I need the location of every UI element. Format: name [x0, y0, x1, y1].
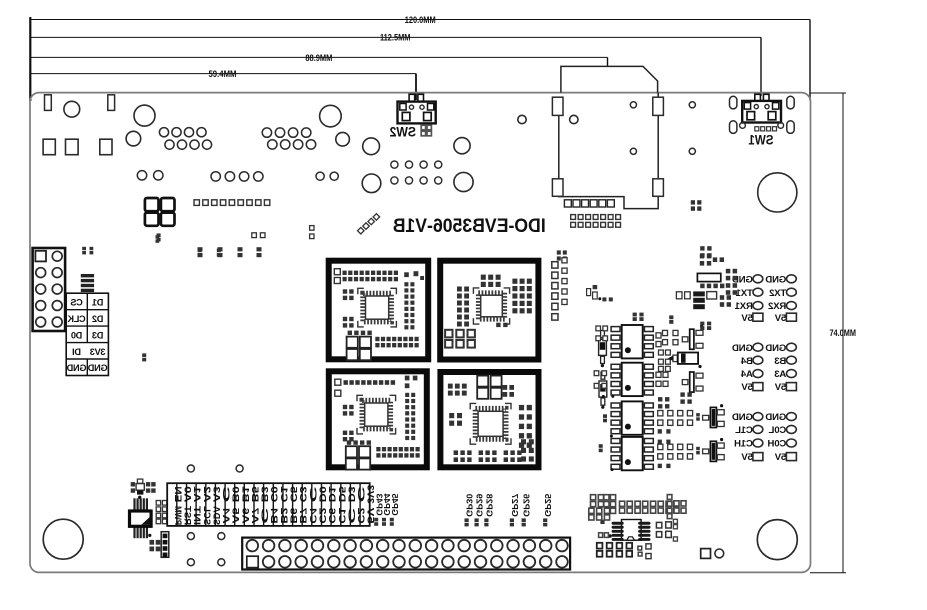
- svg-text:TX1: TX1: [735, 288, 753, 299]
- svg-text:GP27: GP27: [510, 493, 520, 516]
- svg-text:SCL: SCL: [201, 506, 212, 525]
- svg-text:C2: C2: [317, 508, 328, 524]
- svg-text:5V: 5V: [774, 452, 786, 463]
- svg-text:A3: A3: [210, 486, 221, 502]
- svg-text:EN: EN: [172, 486, 183, 502]
- svg-text:SW1: SW1: [748, 133, 773, 148]
- svg-text:B0: B0: [230, 486, 241, 502]
- svg-text:GP25: GP25: [543, 493, 553, 516]
- svg-text:D2: D2: [92, 314, 103, 324]
- svg-text:C0: C0: [268, 486, 279, 502]
- svg-text:C1: C1: [278, 485, 289, 502]
- svg-text:59.4MM: 59.4MM: [209, 69, 237, 80]
- svg-text:B5: B5: [249, 485, 260, 502]
- svg-text:D3: D3: [345, 486, 356, 502]
- svg-text:C1L: C1L: [735, 425, 753, 436]
- svg-text:B2: B2: [278, 508, 289, 524]
- svg-text:A5: A5: [230, 507, 241, 524]
- svg-text:5V: 5V: [365, 507, 376, 524]
- svg-text:DI: DI: [72, 347, 81, 357]
- svg-text:GND: GND: [765, 412, 786, 423]
- svg-text:GP29: GP29: [475, 493, 485, 516]
- svg-text:C: C: [355, 486, 366, 502]
- svg-text:C0H: C0H: [767, 439, 786, 450]
- svg-text:3V3: 3V3: [365, 485, 376, 504]
- svg-text:IDO-EVB3506-V1B: IDO-EVB3506-V1B: [393, 216, 546, 237]
- svg-text:INT: INT: [191, 506, 202, 525]
- svg-text:C0L: C0L: [768, 425, 786, 436]
- svg-text:D1: D1: [326, 485, 337, 502]
- svg-text:GND: GND: [66, 363, 86, 373]
- svg-text:A2: A2: [201, 486, 212, 502]
- svg-text:RX2: RX2: [768, 301, 786, 312]
- svg-text:B6: B6: [288, 508, 299, 524]
- svg-text:GND: GND: [765, 274, 786, 285]
- svg-text:C1: C1: [336, 507, 347, 524]
- svg-text:3V3: 3V3: [90, 347, 106, 357]
- svg-text:5V: 5V: [741, 452, 753, 463]
- svg-text:GP30: GP30: [465, 493, 475, 516]
- svg-text:GP44: GP44: [382, 493, 391, 515]
- svg-text:74.0MM: 74.0MM: [829, 328, 856, 339]
- svg-text:C4: C4: [307, 507, 318, 524]
- svg-text:RX1: RX1: [734, 301, 753, 312]
- svg-text:SW2: SW2: [390, 125, 417, 140]
- svg-text:C1H: C1H: [734, 439, 753, 450]
- svg-text:CS: CS: [70, 297, 82, 307]
- svg-text:B3: B3: [259, 486, 270, 502]
- svg-text:D0: D0: [317, 486, 328, 502]
- svg-text:GP45: GP45: [390, 493, 399, 515]
- svg-text:TX2: TX2: [769, 288, 786, 299]
- svg-text:5V: 5V: [774, 382, 786, 393]
- svg-text:D3: D3: [92, 330, 103, 340]
- svg-text:A3: A3: [774, 369, 786, 380]
- svg-text:SDA: SDA: [210, 506, 221, 525]
- svg-text:RST: RST: [182, 506, 193, 525]
- svg-text:5V: 5V: [741, 313, 753, 324]
- svg-text:5V: 5V: [741, 382, 753, 393]
- svg-text:GND: GND: [732, 412, 753, 423]
- svg-text:A4: A4: [220, 507, 231, 524]
- svg-text:112.5MM: 112.5MM: [380, 33, 411, 44]
- svg-text:B1: B1: [239, 485, 250, 502]
- svg-text:C2: C2: [355, 508, 366, 524]
- svg-text:GND: GND: [732, 343, 753, 354]
- svg-text:5V: 5V: [774, 313, 786, 324]
- svg-text:GND: GND: [87, 363, 107, 373]
- svg-text:B3: B3: [774, 356, 786, 367]
- svg-text:C5: C5: [288, 485, 299, 502]
- svg-text:D5: D5: [336, 485, 347, 502]
- svg-text:CLK: CLK: [67, 314, 86, 324]
- svg-text:C3: C3: [297, 486, 308, 502]
- svg-text:GP43: GP43: [374, 493, 383, 515]
- svg-text:A1: A1: [191, 485, 202, 502]
- svg-text:C: C: [259, 507, 270, 523]
- svg-text:C: C: [220, 486, 231, 502]
- svg-text:120.0MM: 120.0MM: [405, 15, 436, 26]
- svg-text:D0: D0: [71, 330, 82, 340]
- svg-text:88.9MM: 88.9MM: [305, 53, 332, 64]
- svg-text:D1: D1: [92, 297, 103, 307]
- svg-text:GND: GND: [765, 343, 786, 354]
- svg-text:A7: A7: [249, 508, 260, 524]
- svg-text:PWM: PWM: [172, 506, 183, 525]
- svg-text:C: C: [307, 486, 318, 502]
- svg-text:GP26: GP26: [522, 493, 532, 516]
- svg-text:A4: A4: [740, 369, 753, 380]
- svg-text:B7: B7: [297, 508, 308, 524]
- svg-text:B4: B4: [740, 356, 753, 367]
- svg-text:C: C: [345, 507, 356, 523]
- svg-text:C6: C6: [326, 508, 337, 524]
- svg-text:A0: A0: [182, 486, 193, 502]
- svg-text:A6: A6: [239, 508, 250, 524]
- svg-text:GP28: GP28: [484, 493, 494, 516]
- svg-text:B4: B4: [268, 507, 279, 524]
